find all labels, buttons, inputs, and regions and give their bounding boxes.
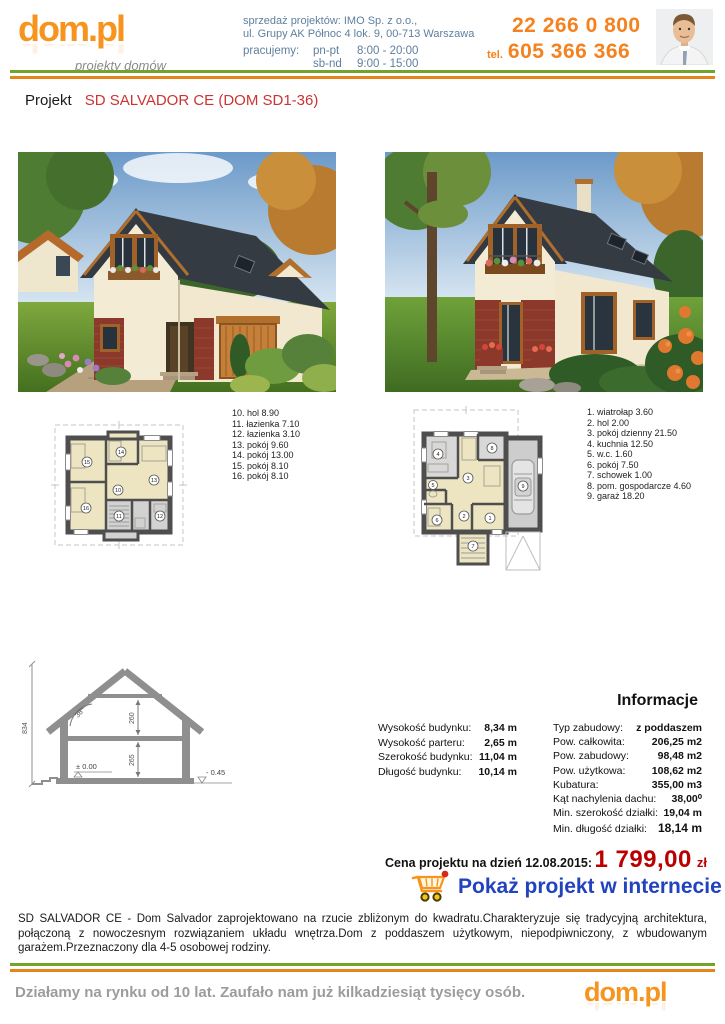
level-minus-label: - 0.45	[206, 768, 225, 777]
room-list-item: 15. pokój 8.10	[232, 461, 300, 472]
header-divider-green	[10, 70, 715, 73]
dim-attic-height: 260	[129, 712, 136, 724]
spec-row: Pow. zabudowy: 98,48 m2	[553, 750, 702, 764]
room-list-item: 11. łazienka 7.10	[232, 419, 300, 430]
room-list-item: 8. pom. gospodarcze 4.60	[587, 481, 691, 492]
price-currency: zł	[697, 855, 707, 870]
spec-row: Szerokość budynku: 11,04 m	[378, 751, 517, 766]
hours-row: pn-pt 8:00 - 20:00	[313, 45, 418, 58]
house-render-garden	[385, 152, 703, 392]
footer-logo-reflection: dom.pl	[584, 1003, 667, 1013]
sales-line-1: sprzedaż projektów: IMO Sp. z o.o.,	[243, 15, 478, 28]
floor-plan-ground-drawing: 1 2 3 4 5 6 7 8 9	[406, 404, 548, 572]
room-badge: 11	[116, 514, 122, 520]
project-title: Projekt SD SALVADOR CE (DOM SD1-36)	[25, 92, 318, 109]
hours-table: pn-pt 8:00 - 20:00 sb-nd 9:00 - 15:00	[313, 45, 418, 71]
room-list-item: 3. pokój dzienny 21.50	[587, 428, 691, 439]
cross-section: 834 38° 260 265 ± 0.00	[18, 656, 238, 803]
cart-icon[interactable]	[410, 869, 450, 905]
specs-right: Typ zabudowy: z poddaszem Pow. całkowita…	[553, 722, 702, 836]
room-badge: 16	[83, 506, 89, 512]
room-badge: 3	[466, 476, 469, 482]
spec-row: Kąt nachylenia dachu: 38,00⁰	[553, 793, 702, 807]
spec-row: Długość budynku: 10,14 m	[378, 766, 517, 781]
hours-days: pn-pt	[313, 45, 357, 58]
price-label: Cena projektu na dzień 12.08.2015:	[385, 856, 592, 870]
floor-plan-ground: 1 2 3 4 5 6 7 8 9	[406, 404, 548, 577]
spec-row: Wysokość parteru: 2,65 m	[378, 737, 517, 752]
room-badge: 10	[115, 488, 121, 494]
room-list-ground: 1. wiatrołap 3.60 2. hol 2.00 3. pokój d…	[587, 407, 691, 502]
spec-row: Min. długość działki: 18,14 m	[553, 821, 702, 835]
room-list-item: 13. pokój 9.60	[232, 440, 300, 451]
tel-label: tel.	[487, 49, 503, 61]
room-badge: 1	[488, 516, 491, 522]
room-list-item: 1. wiatrołap 3.60	[587, 407, 691, 418]
house-render-front	[18, 152, 336, 392]
room-badge: 13	[151, 478, 157, 484]
room-list-item: 9. garaż 18.20	[587, 491, 691, 502]
spec-row: Wysokość budynku: 8,34 m	[378, 722, 517, 737]
header-contact: sprzedaż projektów: IMO Sp. z o.o., ul. …	[243, 15, 478, 71]
room-list-item: 7. schowek 1.00	[587, 470, 691, 481]
show-project-online-link[interactable]: Pokaż projekt w internecie	[410, 869, 722, 905]
footer-slogan: Działamy na rynku od 10 lat. Zaufało nam…	[15, 984, 525, 1001]
house-render-front-image	[18, 152, 336, 392]
opening-hours: pracujemy: pn-pt 8:00 - 20:00 sb-nd 9:00…	[243, 45, 478, 71]
header-logo[interactable]: dom.pl dom.pl projekty domów	[18, 12, 166, 73]
footer-divider-green	[10, 963, 715, 966]
floor-plan-upper-drawing: 10 11 12 13 14 15 16	[48, 420, 190, 552]
spec-row: Pow. całkowita: 206,25 m2	[553, 736, 702, 750]
room-badge: 9	[521, 484, 524, 490]
logo-text[interactable]: dom.pl	[18, 12, 166, 46]
hours-time: 8:00 - 20:00	[357, 45, 418, 58]
page: dom.pl dom.pl projekty domów sprzedaż pr…	[0, 0, 725, 1024]
cross-section-drawing: 834 38° 260 265 ± 0.00	[18, 656, 238, 798]
footer-logo-text[interactable]: dom.pl	[584, 979, 667, 1005]
room-list-upper: 10. hol 8.90 11. łazienka 7.10 12. łazie…	[232, 408, 300, 482]
hours-label: pracujemy:	[243, 45, 313, 71]
room-badge: 4	[436, 452, 439, 458]
room-list-item: 16. pokój 8.10	[232, 471, 300, 482]
spec-row: Typ zabudowy: z poddaszem	[553, 722, 702, 736]
spec-row: Kubatura: 355,00 m3	[553, 779, 702, 793]
room-list-item: 5. w.c. 1.60	[587, 449, 691, 460]
room-badge: 12	[157, 514, 163, 520]
room-list-item: 6. pokój 7.50	[587, 460, 691, 471]
house-render-garden-image	[385, 152, 703, 392]
consultant-avatar	[656, 9, 713, 65]
cta-label[interactable]: Pokaż projekt w internecie	[458, 875, 722, 899]
room-badge: 2	[462, 514, 465, 520]
title-name[interactable]: SD SALVADOR CE (DOM SD1-36)	[85, 92, 319, 109]
info-heading: Informacje	[540, 692, 698, 710]
project-description: SD SALVADOR CE - Dom Salvador zaprojekto…	[18, 912, 707, 956]
logo-reflection: dom.pl	[18, 44, 166, 56]
room-list-item: 2. hol 2.00	[587, 418, 691, 429]
consultant-photo	[656, 9, 713, 70]
room-badge: 8	[490, 446, 493, 452]
phone-secondary: tel. 605 366 366	[487, 40, 630, 64]
room-badge: 15	[84, 460, 90, 466]
sales-line-2: ul. Grupy AK Północ 4 lok. 9, 00-713 War…	[243, 28, 478, 41]
room-badge: 6	[435, 518, 438, 524]
footer-divider-orange	[10, 969, 715, 972]
phone-primary: 22 266 0 800	[512, 14, 641, 38]
footer-logo[interactable]: dom.pl dom.pl	[584, 979, 667, 1013]
spec-row: Min. szerokość działki: 19,04 m	[553, 807, 702, 821]
dim-total-height: 834	[22, 722, 29, 734]
dim-parter-height: 265	[129, 754, 136, 766]
room-list-item: 10. hol 8.90	[232, 408, 300, 419]
room-list-item: 12. łazienka 3.10	[232, 429, 300, 440]
title-prefix: Projekt	[25, 92, 72, 109]
room-badge: 14	[118, 450, 124, 456]
specs-left: Wysokość budynku: 8,34 m Wysokość parter…	[378, 722, 517, 780]
room-list-item: 4. kuchnia 12.50	[587, 439, 691, 450]
room-badge: 7	[471, 544, 474, 550]
level-zero-label: ± 0.00	[76, 762, 97, 771]
spec-row: Pow. użytkowa: 108,62 m2	[553, 765, 702, 779]
header-divider-orange	[10, 76, 715, 79]
room-badge: 5	[431, 483, 434, 489]
room-list-item: 14. pokój 13.00	[232, 450, 300, 461]
floor-plan-upper: 10 11 12 13 14 15 16	[48, 420, 190, 557]
